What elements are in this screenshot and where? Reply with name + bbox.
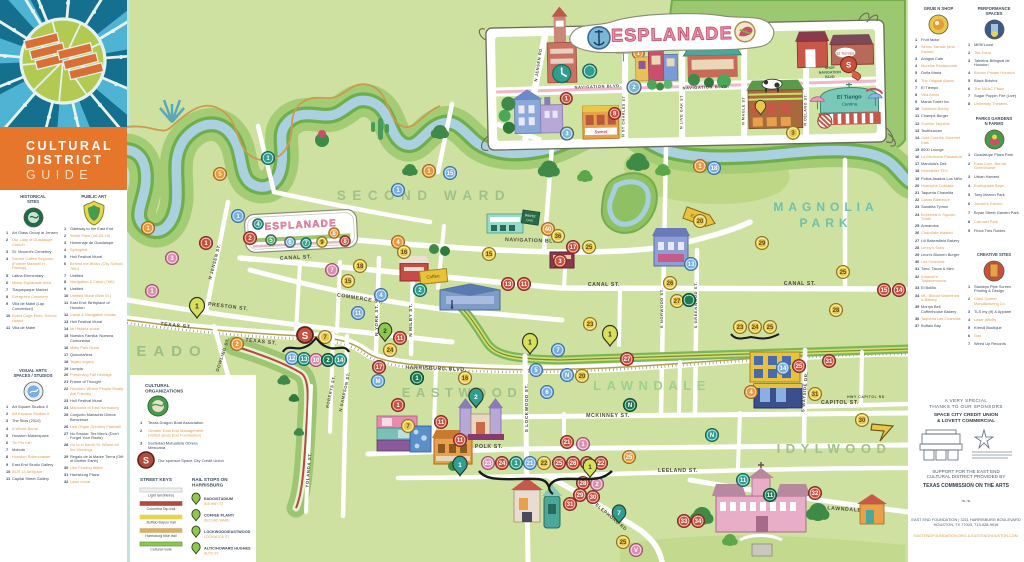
svg-text:28: 28: [833, 308, 840, 314]
svg-text:26: 26: [570, 461, 577, 467]
svg-text:25: 25: [620, 540, 627, 546]
svg-text:LOCKWOOD ST: LOCKWOOD ST: [204, 535, 229, 539]
svg-text:S: S: [302, 331, 309, 342]
svg-text:25: 25: [840, 270, 847, 276]
svg-text:26: 26: [667, 281, 674, 287]
svg-text:29: 29: [577, 493, 584, 499]
svg-text:31: 31: [567, 502, 574, 508]
svg-text:STREET KEYS: STREET KEYS: [140, 477, 172, 482]
svg-text:N: N: [710, 433, 714, 439]
svg-text:23: 23: [587, 322, 594, 328]
svg-text:N ST CHARLES ST: N ST CHARLES ST: [621, 95, 626, 136]
svg-text:11: 11: [457, 438, 464, 444]
svg-text:N MILBY ST.: N MILBY ST.: [408, 303, 413, 336]
svg-text:30: 30: [590, 495, 597, 501]
svg-text:1: 1: [458, 462, 462, 469]
svg-text:EADO/STADIUM: EADO/STADIUM: [204, 497, 233, 501]
svg-text:15: 15: [447, 171, 454, 177]
svg-text:District (East End Foundation): District (East End Foundation): [148, 433, 202, 438]
svg-text:LAWNDALE: LAWNDALE: [593, 378, 711, 393]
svg-text:N DELANO ST.: N DELANO ST.: [803, 93, 807, 125]
svg-text:IDYLWOOD: IDYLWOOD: [777, 441, 892, 456]
svg-text:El Tiango: El Tiango: [837, 94, 862, 101]
svg-text:25: 25: [556, 461, 563, 467]
svg-text:S: S: [143, 456, 149, 466]
svg-text:11: 11: [767, 493, 774, 499]
svg-text:SECOND WARD: SECOND WARD: [204, 519, 230, 523]
svg-text:BLVD: BLVD: [825, 75, 835, 79]
svg-text:13: 13: [301, 357, 308, 363]
svg-text:17: 17: [570, 245, 577, 251]
svg-text:24: 24: [387, 348, 394, 354]
svg-text:14: 14: [896, 288, 903, 294]
svg-text:N: N: [628, 403, 632, 409]
svg-text:32: 32: [812, 491, 819, 497]
svg-text:El Tiempo: El Tiempo: [836, 50, 855, 55]
svg-text:MCKINNEY ST.: MCKINNEY ST.: [586, 413, 630, 419]
svg-text:27: 27: [674, 299, 681, 305]
svg-text:13: 13: [505, 282, 512, 288]
svg-text:HWY CAPITOL RD: HWY CAPITOL RD: [847, 395, 885, 399]
svg-text:15: 15: [345, 279, 352, 285]
svg-text:28: 28: [580, 481, 587, 487]
svg-text:EADO: EADO: [136, 343, 207, 360]
svg-text:ALTIC ST: ALTIC ST: [204, 552, 219, 556]
svg-text:2: 2: [383, 328, 387, 335]
svg-text:18: 18: [711, 166, 718, 172]
svg-text:S NORWOOD ST.: S NORWOOD ST.: [659, 288, 664, 328]
svg-text:1: 1: [528, 340, 532, 347]
svg-text:22: 22: [598, 461, 605, 467]
svg-text:25: 25: [767, 325, 774, 331]
svg-text:Columbia Tap trail: Columbia Tap trail: [147, 507, 176, 511]
svg-text:2: 2: [474, 394, 478, 401]
svg-text:Buffalo Bayou trail: Buffalo Bayou trail: [146, 520, 175, 524]
svg-text:Cultural route: Cultural route: [150, 547, 172, 551]
svg-text:LEELAND ST.: LEELAND ST.: [658, 468, 698, 474]
svg-text:CAPITOL ST.: CAPITOL ST.: [821, 400, 859, 406]
svg-text:13: 13: [688, 262, 695, 268]
svg-text:14: 14: [337, 358, 344, 364]
svg-text:Our sponsor Space City Credit: Our sponsor Space City Credit Union: [158, 458, 224, 463]
svg-text:16: 16: [401, 250, 408, 256]
svg-text:1: 1: [608, 332, 612, 339]
svg-text:29: 29: [759, 241, 766, 247]
svg-text:ESPLANADE: ESPLANADE: [611, 23, 733, 46]
svg-text:27: 27: [624, 357, 631, 363]
svg-text:20: 20: [579, 374, 586, 380]
svg-text:25: 25: [626, 455, 633, 461]
svg-text:1: 1: [588, 464, 592, 471]
svg-text:1: 1: [195, 304, 199, 311]
svg-text:825 HWY ST: 825 HWY ST: [204, 502, 224, 506]
svg-text:40: 40: [545, 227, 552, 233]
svg-text:Sweet: Sweet: [594, 129, 608, 134]
svg-text:18: 18: [357, 264, 364, 270]
svg-text:20: 20: [697, 219, 704, 225]
svg-text:Mexicana: Mexicana: [148, 445, 166, 450]
svg-text:30: 30: [859, 418, 866, 424]
svg-text:HARRISBURG: HARRISBURG: [192, 483, 224, 488]
svg-text:22: 22: [541, 461, 548, 467]
svg-text:M: M: [376, 379, 381, 385]
svg-text:7: 7: [617, 510, 621, 517]
svg-text:Light rail (Metro): Light rail (Metro): [148, 493, 174, 497]
svg-text:S LOCKWOOD ST.: S LOCKWOOD ST.: [524, 384, 529, 432]
svg-text:17: 17: [376, 365, 383, 371]
svg-text:21: 21: [564, 440, 571, 446]
svg-text:31: 31: [812, 392, 819, 398]
svg-text:S: S: [846, 61, 852, 70]
svg-text:33: 33: [681, 519, 688, 525]
svg-text:11: 11: [438, 420, 445, 426]
svg-text:11: 11: [355, 311, 362, 317]
svg-text:SECOND WARD: SECOND WARD: [337, 188, 511, 203]
svg-text:36: 36: [555, 234, 562, 240]
svg-text:PARK: PARK: [799, 216, 852, 230]
svg-text:10: 10: [313, 358, 320, 364]
svg-text:RAIL STOPS ON: RAIL STOPS ON: [192, 477, 228, 482]
svg-text:ORGANIZATIONS: ORGANIZATIONS: [145, 389, 183, 394]
svg-text:11: 11: [397, 336, 404, 342]
svg-text:14: 14: [780, 366, 787, 372]
svg-text:N: N: [565, 373, 569, 379]
svg-text:Texas Dragon Boat Association: Texas Dragon Boat Association: [148, 420, 203, 425]
svg-text:21: 21: [527, 461, 534, 467]
svg-text:CULTURAL: CULTURAL: [145, 383, 170, 388]
svg-text:24: 24: [752, 325, 759, 331]
svg-text:11: 11: [521, 282, 528, 288]
svg-text:COFFEE PLANT/: COFFEE PLANT/: [204, 514, 235, 518]
svg-text:Cantina: Cantina: [842, 101, 858, 106]
svg-text:24: 24: [499, 461, 506, 467]
svg-text:12: 12: [289, 356, 296, 362]
svg-text:23: 23: [737, 325, 744, 331]
svg-text:N MAGLE ST: N MAGLE ST: [741, 96, 745, 124]
svg-text:V: V: [634, 548, 638, 554]
svg-text:CANAL ST.: CANAL ST.: [784, 281, 816, 287]
svg-text:16: 16: [462, 376, 469, 382]
svg-text:CANAL ST.: CANAL ST.: [588, 282, 620, 288]
svg-text:Harrisburg bike trail: Harrisburg bike trail: [145, 534, 176, 538]
svg-text:23: 23: [485, 461, 492, 467]
svg-text:LOCKWOOD/EASTWOOD: LOCKWOOD/EASTWOOD: [204, 530, 251, 534]
svg-text:MAGNOLIA: MAGNOLIA: [773, 200, 878, 214]
svg-text:31: 31: [826, 359, 833, 365]
svg-text:34: 34: [695, 519, 702, 525]
svg-text:ALTIC/HOWARD HUGHES: ALTIC/HOWARD HUGHES: [204, 547, 251, 551]
svg-text:11: 11: [740, 478, 747, 484]
svg-text:15: 15: [881, 288, 888, 294]
svg-text:POLK ST.: POLK ST.: [475, 444, 503, 450]
svg-text:N LIVE OAK ST: N LIVE OAK ST: [679, 95, 683, 129]
svg-text:EASTWOOD: EASTWOOD: [402, 385, 523, 400]
svg-text:25: 25: [796, 364, 803, 370]
svg-text:15: 15: [486, 252, 493, 258]
svg-text:25: 25: [586, 245, 593, 251]
